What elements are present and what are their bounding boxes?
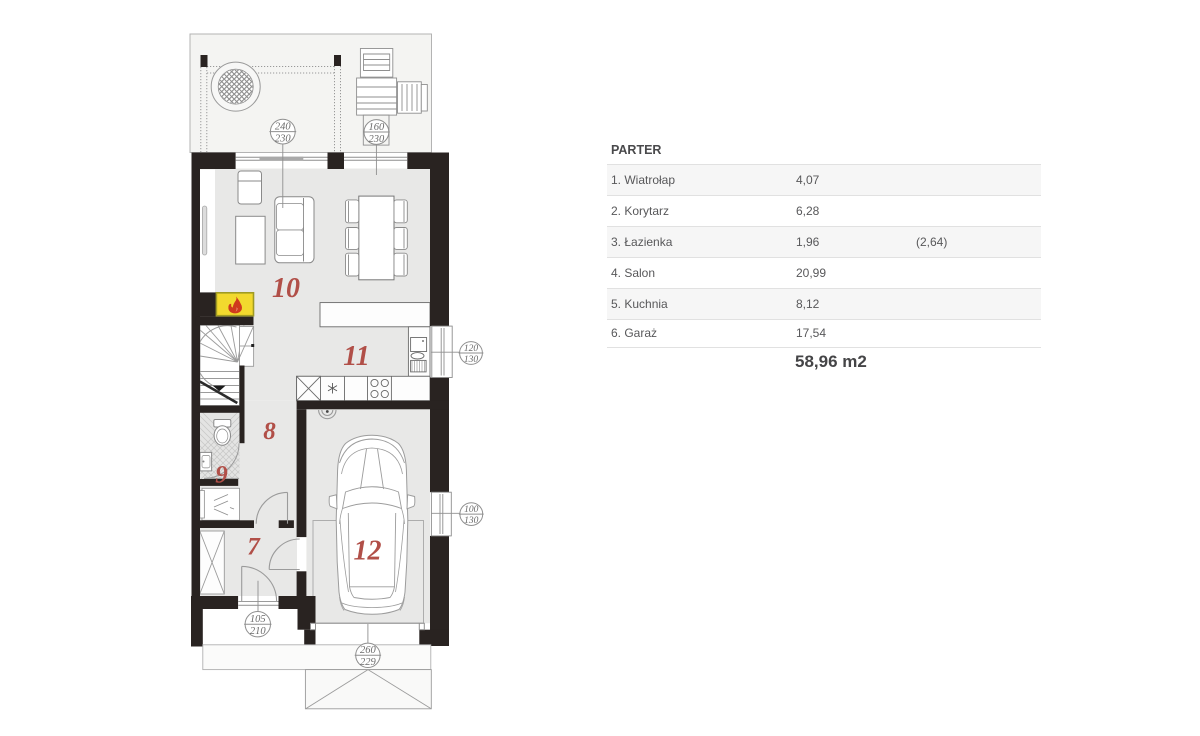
svg-text:11: 11	[343, 341, 369, 372]
svg-text:229: 229	[360, 657, 377, 668]
svg-text:230: 230	[369, 134, 386, 145]
svg-text:9: 9	[215, 462, 228, 489]
svg-text:260: 260	[360, 645, 377, 656]
svg-text:160: 160	[369, 122, 386, 133]
svg-text:240: 240	[275, 121, 292, 132]
svg-text:8: 8	[263, 418, 276, 445]
svg-text:10: 10	[272, 273, 300, 304]
svg-text:130: 130	[464, 516, 479, 526]
svg-text:12: 12	[354, 536, 382, 567]
svg-text:130: 130	[464, 355, 479, 365]
svg-text:105: 105	[250, 614, 266, 625]
svg-text:100: 100	[464, 505, 479, 515]
svg-text:7: 7	[247, 534, 261, 561]
svg-text:120: 120	[464, 344, 479, 354]
svg-text:210: 210	[250, 626, 267, 637]
svg-text:230: 230	[275, 133, 292, 144]
